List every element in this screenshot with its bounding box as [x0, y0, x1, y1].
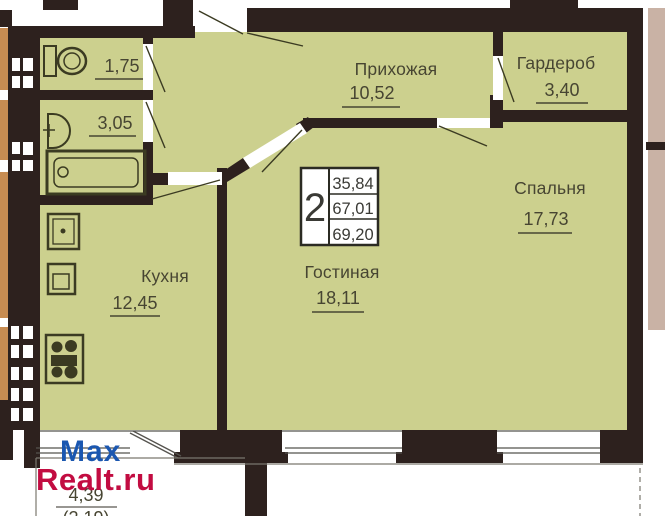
floor-plan: 1,75 3,05 Прихожая 10,52 Гардероб 3,40 С…: [0, 0, 665, 516]
kitchen-label: Кухня: [141, 266, 189, 286]
hallway-label: Прихожая: [355, 59, 438, 79]
kitchen-area: 12,45: [112, 293, 157, 313]
wall-kitchen-door-left: [143, 173, 168, 185]
wardrobe-area: 3,40: [544, 80, 579, 100]
stamp-rooms-count: 2: [304, 186, 326, 230]
living-area: 18,11: [316, 288, 360, 308]
wall-hallway-bottom: [303, 118, 439, 128]
wall-vent-block: [163, 0, 193, 26]
hallway-area: 10,52: [349, 83, 394, 103]
apartment-stamp: 2 35,84 67,01 69,20: [301, 168, 378, 245]
fridge-icon: [48, 214, 79, 249]
balcony-door-swing: [130, 433, 178, 458]
wardrobe-label: Гардероб: [517, 53, 596, 73]
wall-bottom-right-corner: [600, 430, 643, 463]
wardrobe-door-gap: [493, 56, 503, 100]
wall-chimney-block: [43, 0, 78, 10]
wall-pier-2-base: [396, 452, 503, 463]
watermark-line2: Realt.ru: [36, 462, 155, 497]
wall-right: [627, 32, 643, 463]
neighbor-apartment-strip: [0, 28, 8, 400]
wall-bath-bottom: [40, 195, 153, 205]
wall-top-right: [247, 8, 643, 32]
kitchen-door-gap: [168, 172, 222, 185]
bedroom-door-gap: [437, 118, 490, 128]
bedroom-label: Спальня: [514, 178, 586, 198]
balcony-door-swing-2: [133, 431, 181, 456]
stamp-total-area: 69,20: [332, 226, 373, 244]
wall-top-block: [510, 0, 578, 8]
wall-wc-divider: [40, 90, 153, 100]
living-label: Гостиная: [304, 262, 379, 282]
watermark: Max Realt.ru: [36, 435, 155, 497]
wall-balcony-divider: [245, 462, 267, 516]
exterior-right-strip: [646, 8, 665, 330]
wall-kitchen-living: [217, 168, 227, 430]
stove-icon: [46, 335, 83, 383]
balcony-area-secondary: (2,19): [62, 508, 109, 516]
wc-area: 1,75: [104, 56, 139, 76]
wall-top-left-block: [0, 10, 12, 27]
bathroom-area: 3,05: [97, 113, 132, 133]
stamp-living-area: 35,84: [332, 175, 373, 193]
floor-plan-svg: 1,75 3,05 Прихожая 10,52 Гардероб 3,40 С…: [0, 0, 665, 516]
entrance-door-swing-1: [199, 11, 243, 34]
bedroom-area: 17,73: [523, 209, 568, 229]
stamp-apartment-area: 67,01: [332, 200, 373, 218]
wall-wardrobe-bottom: [503, 110, 643, 122]
